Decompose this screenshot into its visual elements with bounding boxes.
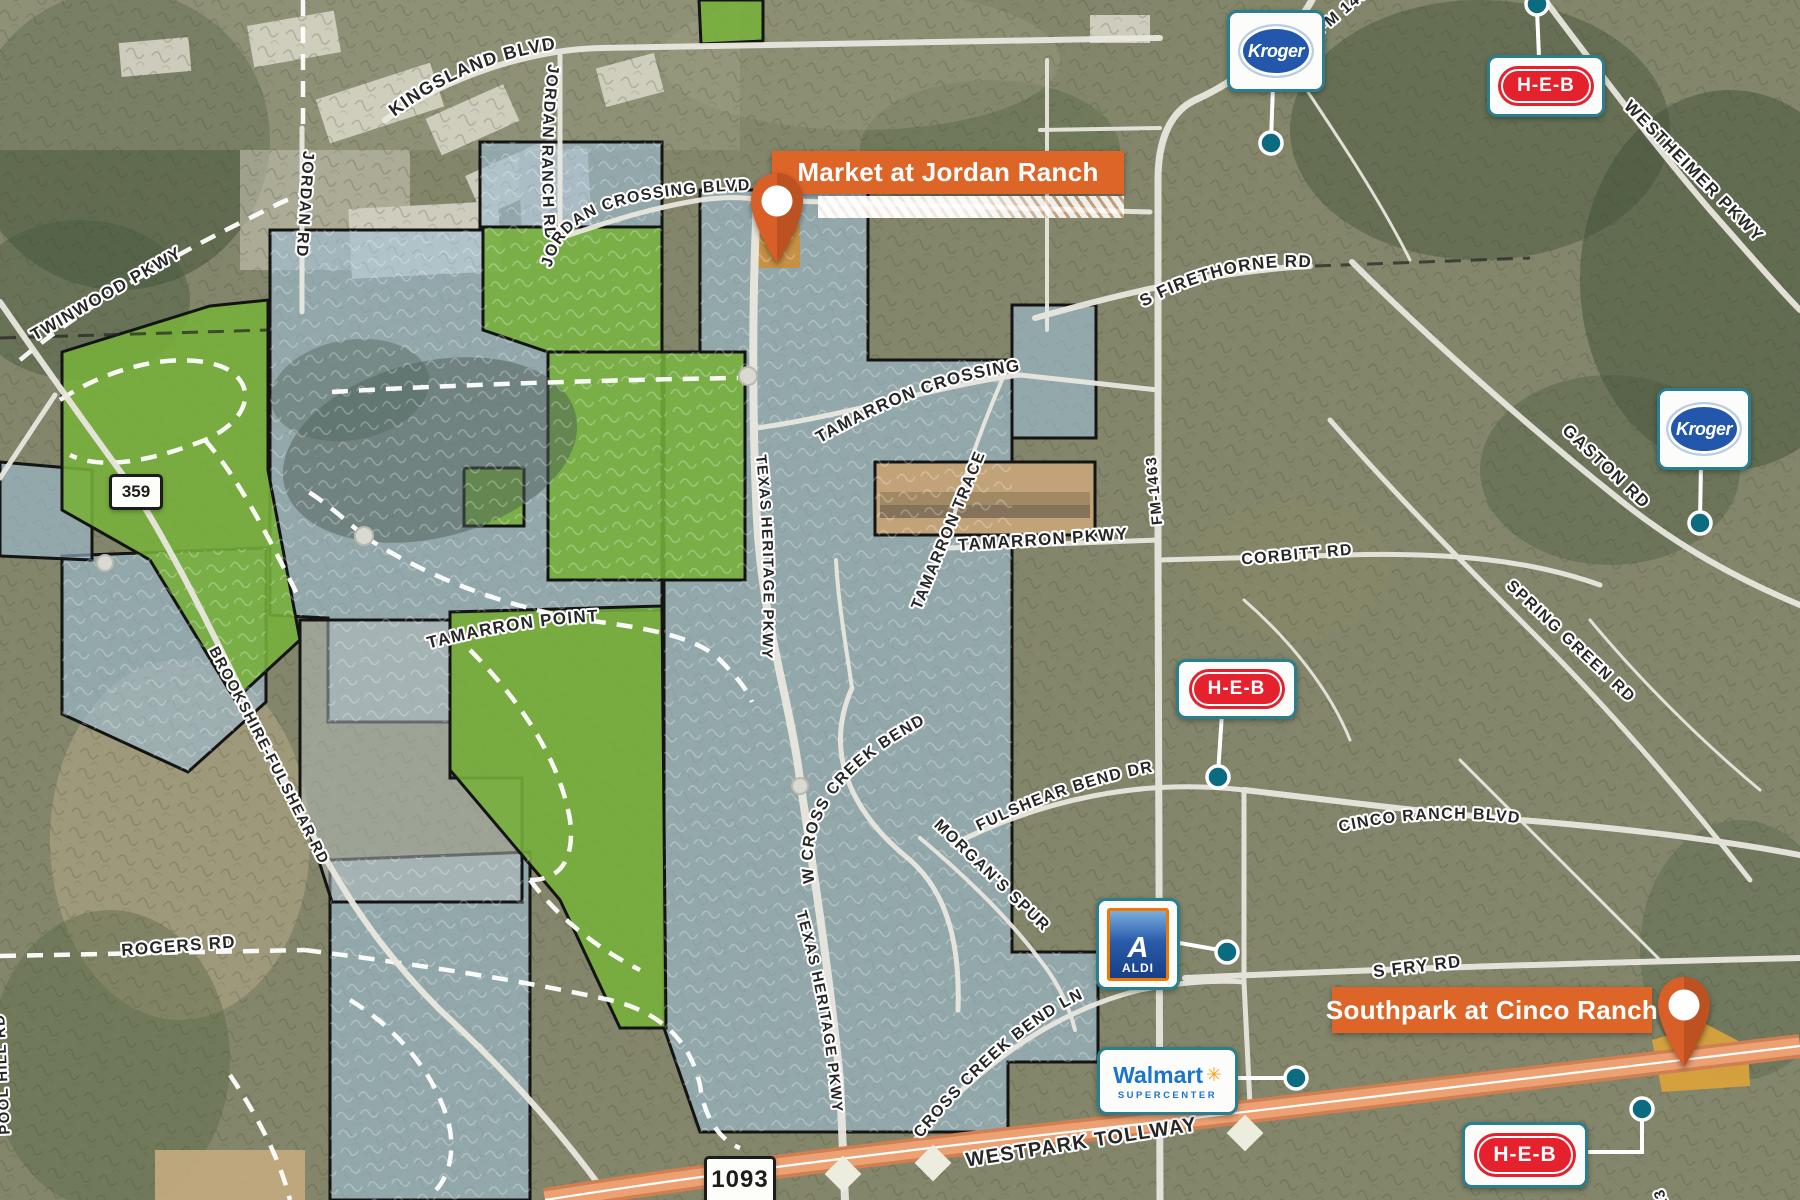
heb-pill-icon: H-E-B	[1498, 66, 1594, 106]
trade-area-map: KINGSLAND BLVD JORDAN RD JORDAN RANCH RD…	[0, 0, 1800, 1200]
kroger-oval-icon: Kroger	[1666, 402, 1742, 456]
heb-logo-south: H-E-B	[1462, 1122, 1588, 1188]
walmart-logo: Walmart ✳ SUPERCENTER	[1097, 1047, 1238, 1115]
heb-pill-icon: H-E-B	[1474, 1133, 1576, 1177]
kroger-logo-east: Kroger	[1657, 388, 1751, 470]
aldi-square-icon: A ALDI	[1107, 908, 1169, 981]
market-banner-substrip	[818, 196, 1124, 218]
heb-pill-icon: H-E-B	[1189, 669, 1285, 709]
walmart-wordmark: Walmart	[1113, 1062, 1203, 1089]
aldi-wordmark: ALDI	[1122, 961, 1154, 975]
heb-logo-northeast: H-E-B	[1487, 55, 1605, 117]
kroger-oval-icon: Kroger	[1238, 24, 1314, 78]
kroger-logo-north: Kroger	[1227, 10, 1325, 92]
aldi-logo: A ALDI	[1096, 898, 1180, 990]
market-at-jordan-ranch-banner: Market at Jordan Ranch	[772, 151, 1124, 194]
heb-logo-center: H-E-B	[1176, 659, 1297, 719]
market-pin-icon	[746, 170, 808, 266]
walmart-spark-icon: ✳	[1206, 1064, 1222, 1087]
southpark-pin-icon	[1653, 974, 1715, 1070]
highway-shield-1093: 1093	[704, 1156, 776, 1200]
highway-shield-359: 359	[109, 474, 163, 510]
aldi-a-glyph: A	[1128, 936, 1149, 961]
walmart-supercenter-label: SUPERCENTER	[1118, 1090, 1217, 1101]
southpark-at-cinco-ranch-banner: Southpark at Cinco Ranch	[1332, 987, 1652, 1033]
